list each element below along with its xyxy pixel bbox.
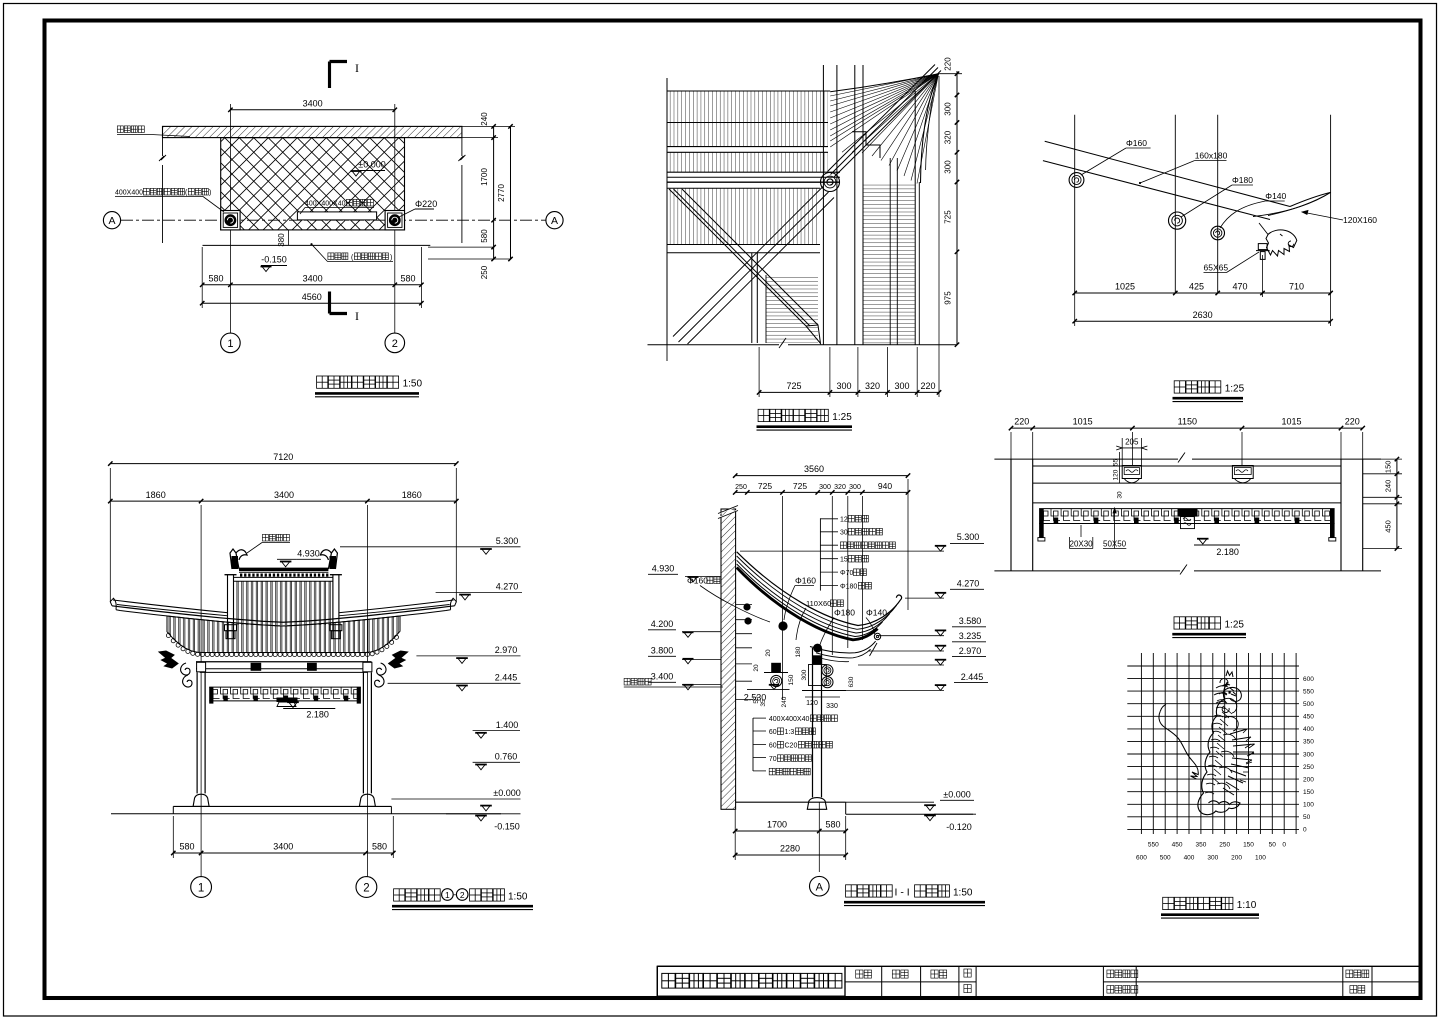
- svg-text:450: 450: [1384, 520, 1393, 533]
- svg-text:70: 70: [769, 756, 777, 763]
- svg-text:60: 60: [769, 729, 777, 736]
- svg-text:-0.120: -0.120: [946, 822, 972, 832]
- svg-text:4560: 4560: [302, 292, 322, 302]
- svg-text:Φ160: Φ160: [1126, 138, 1147, 148]
- svg-text:4.930: 4.930: [652, 564, 675, 574]
- svg-text:320: 320: [834, 484, 846, 491]
- svg-text:1:25: 1:25: [1225, 383, 1245, 394]
- svg-text:2280: 2280: [780, 844, 800, 854]
- svg-text:220: 220: [1014, 417, 1029, 427]
- svg-text:580: 580: [825, 820, 840, 830]
- svg-text:1:25: 1:25: [832, 412, 852, 423]
- svg-text:320: 320: [944, 130, 953, 144]
- svg-text:940: 940: [878, 481, 892, 491]
- svg-text:205: 205: [1125, 438, 1139, 447]
- svg-text:20X30: 20X30: [1070, 540, 1094, 549]
- svg-text:1700: 1700: [480, 168, 489, 186]
- svg-text:Φ180: Φ180: [1232, 175, 1253, 185]
- svg-text:100: 100: [1303, 802, 1314, 809]
- svg-text:580: 580: [208, 274, 223, 284]
- svg-text:1:3: 1:3: [785, 729, 795, 736]
- svg-text:400X400X40: 400X400X40: [305, 201, 346, 208]
- svg-text:3560: 3560: [804, 464, 824, 474]
- svg-text:50: 50: [1269, 842, 1277, 849]
- svg-text:300: 300: [849, 484, 861, 491]
- svg-text:3400: 3400: [303, 274, 323, 284]
- svg-text:0: 0: [1303, 827, 1307, 834]
- svg-text:120: 120: [1113, 469, 1120, 480]
- svg-text:150: 150: [1384, 461, 1393, 474]
- svg-text:5.300: 5.300: [496, 536, 519, 546]
- svg-text:3400: 3400: [273, 842, 293, 852]
- svg-text:1:10: 1:10: [1237, 900, 1257, 911]
- svg-text:725: 725: [786, 381, 801, 391]
- svg-text:1: 1: [445, 890, 450, 900]
- svg-text:300: 300: [894, 381, 909, 391]
- svg-text:50: 50: [1303, 814, 1311, 821]
- svg-text:450: 450: [1172, 842, 1183, 849]
- svg-text:580: 580: [179, 842, 194, 852]
- svg-text:300: 300: [944, 102, 953, 116]
- svg-text:450: 450: [1303, 714, 1314, 721]
- svg-text:2.180: 2.180: [306, 710, 329, 720]
- svg-text:300: 300: [801, 669, 808, 680]
- svg-text:580: 580: [480, 229, 489, 243]
- svg-text:1:50: 1:50: [403, 379, 423, 390]
- svg-text:1.400: 1.400: [496, 720, 519, 730]
- svg-text:1860: 1860: [402, 490, 422, 500]
- svg-text:4.200: 4.200: [651, 619, 674, 629]
- svg-text:Φ140: Φ140: [866, 608, 887, 618]
- svg-text:630: 630: [848, 676, 855, 687]
- svg-text:15: 15: [840, 557, 848, 564]
- svg-text:300: 300: [819, 484, 831, 491]
- svg-text:320: 320: [865, 381, 880, 391]
- svg-text:3400: 3400: [274, 490, 294, 500]
- svg-text:220: 220: [1345, 417, 1360, 427]
- svg-text:65X65: 65X65: [1204, 263, 1229, 273]
- svg-text:2.970: 2.970: [959, 646, 982, 656]
- svg-text:±0.000: ±0.000: [943, 790, 970, 800]
- svg-text:580: 580: [372, 842, 387, 852]
- svg-text:4.930: 4.930: [297, 549, 320, 559]
- svg-text:1015: 1015: [1073, 417, 1093, 427]
- svg-text:725: 725: [944, 210, 953, 224]
- svg-text:Φ70: Φ70: [840, 570, 853, 577]
- svg-text:1: 1: [198, 882, 204, 894]
- svg-text:12: 12: [840, 517, 848, 524]
- svg-text:1700: 1700: [767, 820, 787, 830]
- svg-text:55: 55: [1113, 459, 1120, 467]
- svg-text:100: 100: [1255, 855, 1266, 862]
- svg-text:A: A: [108, 215, 115, 227]
- svg-text:470: 470: [1232, 282, 1247, 292]
- svg-text:I: I: [355, 309, 359, 323]
- svg-text:I - I: I - I: [895, 886, 910, 898]
- svg-text:550: 550: [1303, 688, 1314, 695]
- svg-text:300: 300: [1303, 751, 1314, 758]
- svg-text:3.580: 3.580: [959, 616, 982, 626]
- svg-text:Φ160: Φ160: [687, 576, 708, 586]
- svg-text:250: 250: [480, 265, 489, 279]
- svg-text:1:50: 1:50: [953, 887, 973, 898]
- svg-text:3.235: 3.235: [959, 631, 982, 641]
- svg-text:160x180: 160x180: [1195, 151, 1228, 161]
- svg-text:1:50: 1:50: [508, 891, 528, 902]
- svg-text:20: 20: [753, 664, 760, 672]
- svg-text:1:25: 1:25: [1225, 619, 1245, 630]
- svg-text:2.445: 2.445: [961, 672, 984, 682]
- svg-text:400: 400: [1184, 855, 1195, 862]
- svg-text:-0.150: -0.150: [494, 822, 520, 832]
- svg-text:Φ160: Φ160: [795, 576, 816, 586]
- svg-text:240: 240: [1384, 480, 1393, 493]
- svg-text:150: 150: [1243, 842, 1254, 849]
- svg-text:Φ140: Φ140: [1265, 191, 1286, 201]
- svg-text:2: 2: [460, 890, 465, 900]
- svg-text:550: 550: [1148, 842, 1159, 849]
- svg-text:200: 200: [1231, 855, 1242, 862]
- svg-text:7120: 7120: [273, 452, 293, 462]
- svg-text:400X400X40: 400X400X40: [769, 716, 810, 723]
- svg-text:120X160: 120X160: [1343, 215, 1377, 225]
- svg-text:350: 350: [1303, 739, 1314, 746]
- svg-text:975: 975: [944, 291, 953, 305]
- svg-text:2.530: 2.530: [744, 693, 767, 703]
- svg-text:725: 725: [793, 481, 807, 491]
- svg-text:1025: 1025: [1115, 282, 1135, 292]
- svg-text:1860: 1860: [146, 490, 166, 500]
- svg-text:580: 580: [400, 274, 415, 284]
- svg-text:-0.150: -0.150: [261, 255, 287, 265]
- svg-text:I: I: [355, 61, 359, 75]
- svg-text:): ): [209, 190, 211, 197]
- svg-text:425: 425: [1189, 282, 1204, 292]
- svg-text:110X60: 110X60: [806, 599, 831, 608]
- svg-text:220: 220: [944, 57, 953, 71]
- svg-text:4.270: 4.270: [496, 582, 519, 592]
- svg-text:20: 20: [765, 649, 772, 657]
- svg-text:0.760: 0.760: [495, 752, 518, 762]
- svg-text:1150: 1150: [1178, 417, 1197, 427]
- svg-text:30: 30: [1117, 491, 1124, 499]
- svg-text:330: 330: [826, 703, 838, 710]
- svg-text:380: 380: [277, 233, 286, 247]
- svg-text:3400: 3400: [303, 99, 323, 109]
- svg-text:2: 2: [392, 338, 398, 350]
- svg-text:250: 250: [1219, 842, 1230, 849]
- svg-text:600: 600: [1136, 855, 1147, 862]
- svg-text:1: 1: [227, 338, 233, 350]
- svg-text:±0.000: ±0.000: [358, 160, 385, 170]
- svg-text:2: 2: [363, 882, 369, 894]
- svg-text:150: 150: [788, 674, 795, 685]
- svg-text:C20: C20: [785, 743, 798, 750]
- svg-text:350: 350: [1195, 842, 1206, 849]
- svg-text:±0.000: ±0.000: [493, 788, 520, 798]
- svg-text:Φ180: Φ180: [834, 608, 855, 618]
- svg-text:A: A: [816, 881, 824, 893]
- svg-text:250: 250: [735, 484, 747, 491]
- svg-text:A: A: [551, 215, 558, 227]
- svg-text:Φ220: Φ220: [415, 199, 437, 209]
- svg-text:200: 200: [1303, 776, 1314, 783]
- svg-text:400X400: 400X400: [115, 190, 143, 197]
- svg-text:250: 250: [1303, 764, 1314, 771]
- svg-text:): ): [390, 255, 392, 262]
- svg-text:30: 30: [840, 530, 848, 537]
- svg-text:4.270: 4.270: [957, 579, 980, 589]
- svg-text:3.400: 3.400: [651, 672, 674, 682]
- svg-text:0: 0: [1282, 842, 1286, 849]
- svg-text:2630: 2630: [1193, 310, 1213, 320]
- svg-text:240: 240: [480, 112, 489, 126]
- svg-text:240: 240: [781, 696, 788, 707]
- svg-text:725: 725: [758, 481, 772, 491]
- svg-text:2.180: 2.180: [1216, 547, 1239, 557]
- svg-text:180: 180: [795, 646, 802, 657]
- svg-text:710: 710: [1289, 282, 1304, 292]
- svg-text:500: 500: [1160, 855, 1171, 862]
- svg-text:300: 300: [836, 381, 851, 391]
- svg-text:300: 300: [944, 160, 953, 174]
- svg-text:2.970: 2.970: [495, 645, 518, 655]
- svg-text:3.800: 3.800: [651, 646, 674, 656]
- svg-text:500: 500: [1303, 701, 1314, 708]
- svg-text:60: 60: [769, 743, 777, 750]
- svg-text:1015: 1015: [1281, 417, 1301, 427]
- svg-text:220: 220: [920, 381, 935, 391]
- svg-text:400: 400: [1303, 726, 1314, 733]
- svg-text:300: 300: [1207, 855, 1218, 862]
- svg-text:2.445: 2.445: [495, 673, 518, 683]
- svg-text:2770: 2770: [497, 184, 506, 202]
- svg-text:5.300: 5.300: [957, 532, 980, 542]
- svg-text:600: 600: [1303, 676, 1314, 683]
- svg-text:150: 150: [1303, 789, 1314, 796]
- svg-text:Φ180: Φ180: [840, 584, 857, 591]
